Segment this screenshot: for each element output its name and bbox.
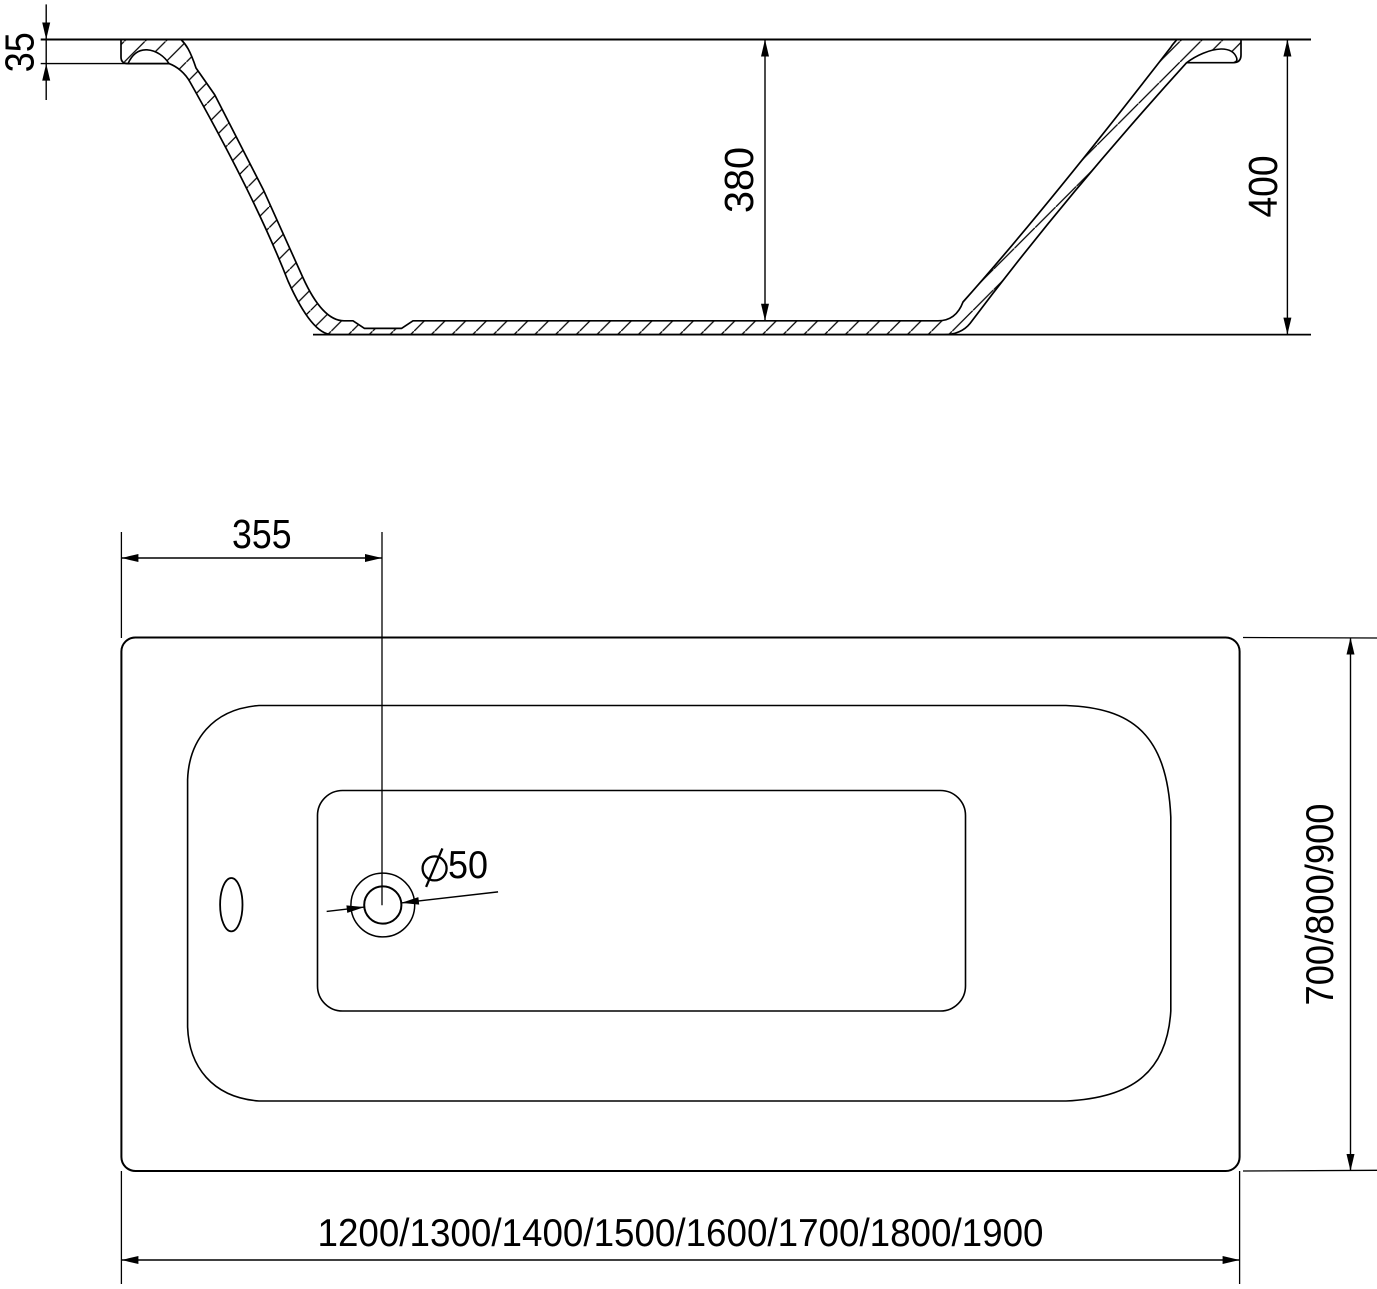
svg-text:1200/1300/1400/1500/1600/1700/: 1200/1300/1400/1500/1600/1700/1800/1900 (318, 1212, 1044, 1255)
svg-text:400: 400 (1240, 156, 1286, 218)
svg-text:380: 380 (716, 147, 762, 213)
svg-text:355: 355 (232, 511, 292, 557)
svg-text:50: 50 (448, 844, 488, 887)
svg-text:700/800/900: 700/800/900 (1299, 804, 1342, 1006)
svg-text:35: 35 (0, 32, 42, 72)
